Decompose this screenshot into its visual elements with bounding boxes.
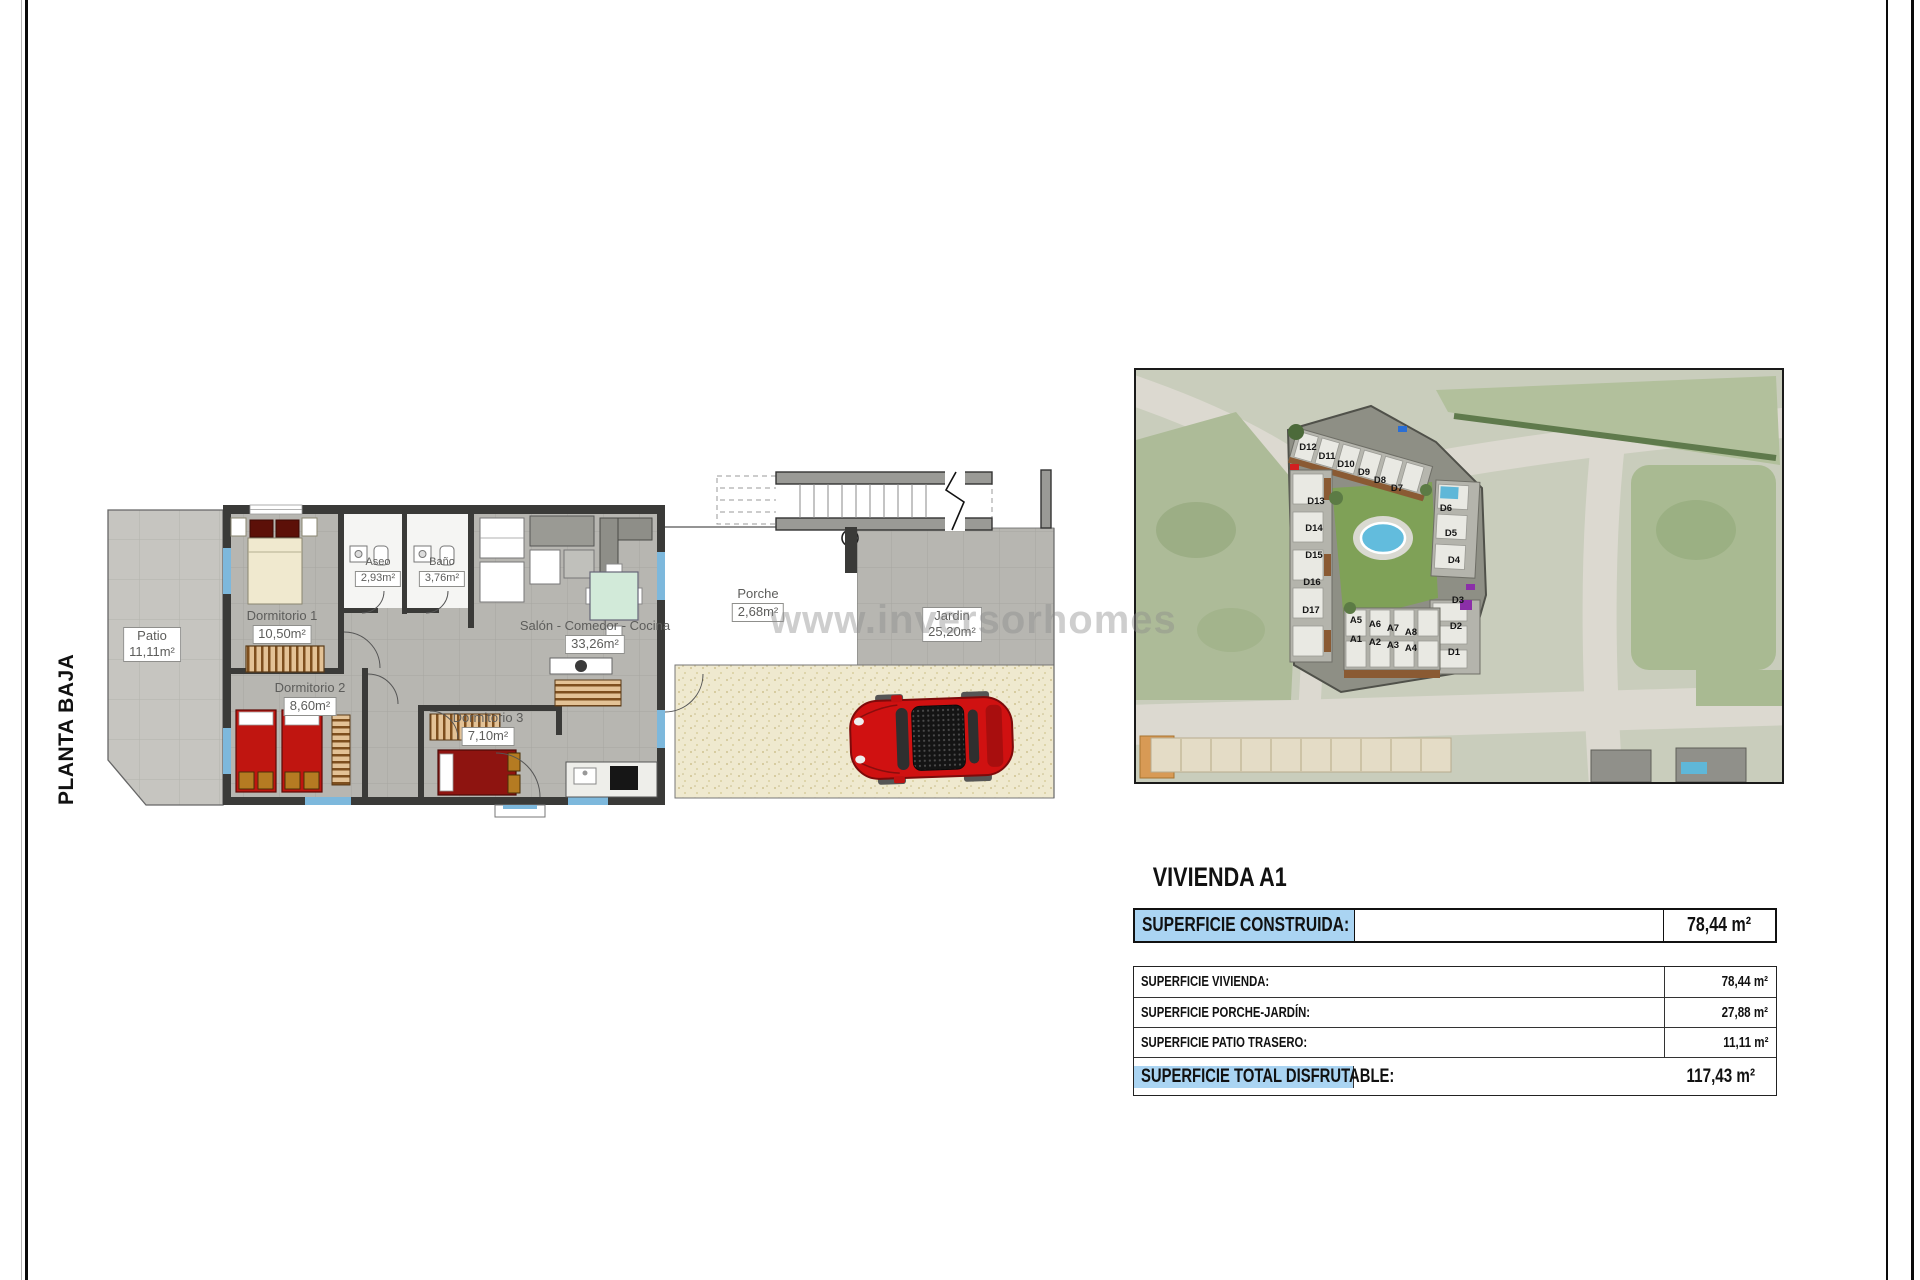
room-name: Baño (419, 556, 465, 570)
map-unit-D16: D16 (1303, 577, 1320, 588)
header-label-cell: SUPERFICIE CONSTRUIDA: (1135, 910, 1355, 941)
watermark: www.inversorhomes (770, 598, 1177, 643)
header-value-cell: 78,44 m² (1664, 910, 1775, 941)
map-unit-D12: D12 (1299, 442, 1316, 453)
table-row: SUPERFICIE PORCHE-JARDÍN: 27,88 m² (1134, 998, 1776, 1028)
plan-sheet: PLANTA BAJA (0, 0, 1920, 1280)
surface-header-table: SUPERFICIE CONSTRUIDA: 78,44 m² (1133, 908, 1777, 943)
room-area: 7,10m² (462, 727, 514, 745)
map-unit-D2: D2 (1450, 621, 1462, 632)
room-label-dormitorio-1: Dormitorio 110,50m² (245, 608, 320, 644)
map-unit-A5: A5 (1350, 615, 1363, 626)
room-name: Salón - Comedor - Cocina (518, 618, 672, 634)
room-label-patio: Patio11,11m² (123, 626, 181, 662)
map-unit-D8: D8 (1374, 475, 1386, 486)
map-unit-A1: A1 (1350, 634, 1363, 645)
room-name: Aseo (355, 556, 401, 570)
map-unit-D1: D1 (1448, 647, 1461, 658)
site-plan-map: D12D11D10D9D8D7D13D14D15D16D17D6D5D4D3D2… (1134, 368, 1784, 784)
sheet-frame-line (1886, 0, 1888, 1280)
map-unit-A2: A2 (1369, 637, 1381, 648)
room-area: 2,93m² (355, 571, 401, 587)
map-unit-D5: D5 (1445, 528, 1458, 539)
header-spacer-cell (1355, 910, 1664, 941)
room-label-aseo: Aseo2,93m² (355, 556, 401, 587)
room-name: Dormitorio 3 (451, 710, 526, 726)
unit-title: VIVIENDA A1 (1136, 862, 1304, 893)
map-unit-A7: A7 (1387, 623, 1399, 634)
sheet-frame-line (1911, 0, 1914, 1280)
table-row: SUPERFICIE VIVIENDA: 78,44 m² (1134, 967, 1776, 998)
sheet-frame-line (21, 0, 22, 1280)
map-unit-D10: D10 (1337, 459, 1354, 470)
room-area: 33,26m² (565, 635, 625, 653)
floor-plan-labels: Patio11,11m²Dormitorio 110,50m²Aseo2,93m… (100, 460, 1080, 832)
room-area: 8,60m² (284, 697, 336, 715)
map-unit-A3: A3 (1387, 640, 1399, 651)
map-unit-D3: D3 (1452, 595, 1464, 606)
surface-detail-table: SUPERFICIE VIVIENDA: 78,44 m² SUPERFICIE… (1133, 966, 1777, 1096)
map-unit-D17: D17 (1302, 605, 1319, 616)
room-label-salon: Salón - Comedor - Cocina33,26m² (518, 618, 672, 654)
floor-title: PLANTA BAJA (55, 685, 81, 805)
table-total-row: SUPERFICIE TOTAL DISFRUTABLE: 117,43 m² (1134, 1058, 1776, 1095)
map-unit-D7: D7 (1391, 483, 1403, 494)
room-area: 10,50m² (252, 625, 312, 643)
map-unit-D15: D15 (1305, 550, 1323, 561)
map-unit-D9: D9 (1358, 467, 1370, 478)
map-unit-A8: A8 (1405, 627, 1417, 638)
room-label-bano: Baño3,76m² (419, 556, 465, 587)
map-unit-D13: D13 (1307, 496, 1324, 507)
room-area: 11,11m² (129, 644, 175, 660)
map-unit-D6: D6 (1440, 503, 1452, 514)
map-unit-D4: D4 (1448, 555, 1461, 566)
map-unit-D11: D11 (1319, 451, 1337, 462)
floor-plan: Patio11,11m²Dormitorio 110,50m²Aseo2,93m… (100, 460, 1080, 832)
room-label-dormitorio-3: Dormitorio 37,10m² (451, 710, 526, 746)
room-name: Dormitorio 2 (273, 680, 348, 696)
table-row: SUPERFICIE PATIO TRASERO: 11,11 m² (1134, 1028, 1776, 1058)
room-area: 3,76m² (419, 571, 465, 587)
map-unit-A4: A4 (1405, 643, 1418, 654)
room-name: Patio (129, 628, 175, 644)
room-name: Dormitorio 1 (245, 608, 320, 624)
map-unit-A6: A6 (1369, 619, 1381, 630)
sheet-frame-line (25, 0, 28, 1280)
map-unit-D14: D14 (1305, 523, 1323, 534)
room-label-dormitorio-2: Dormitorio 28,60m² (273, 680, 348, 716)
